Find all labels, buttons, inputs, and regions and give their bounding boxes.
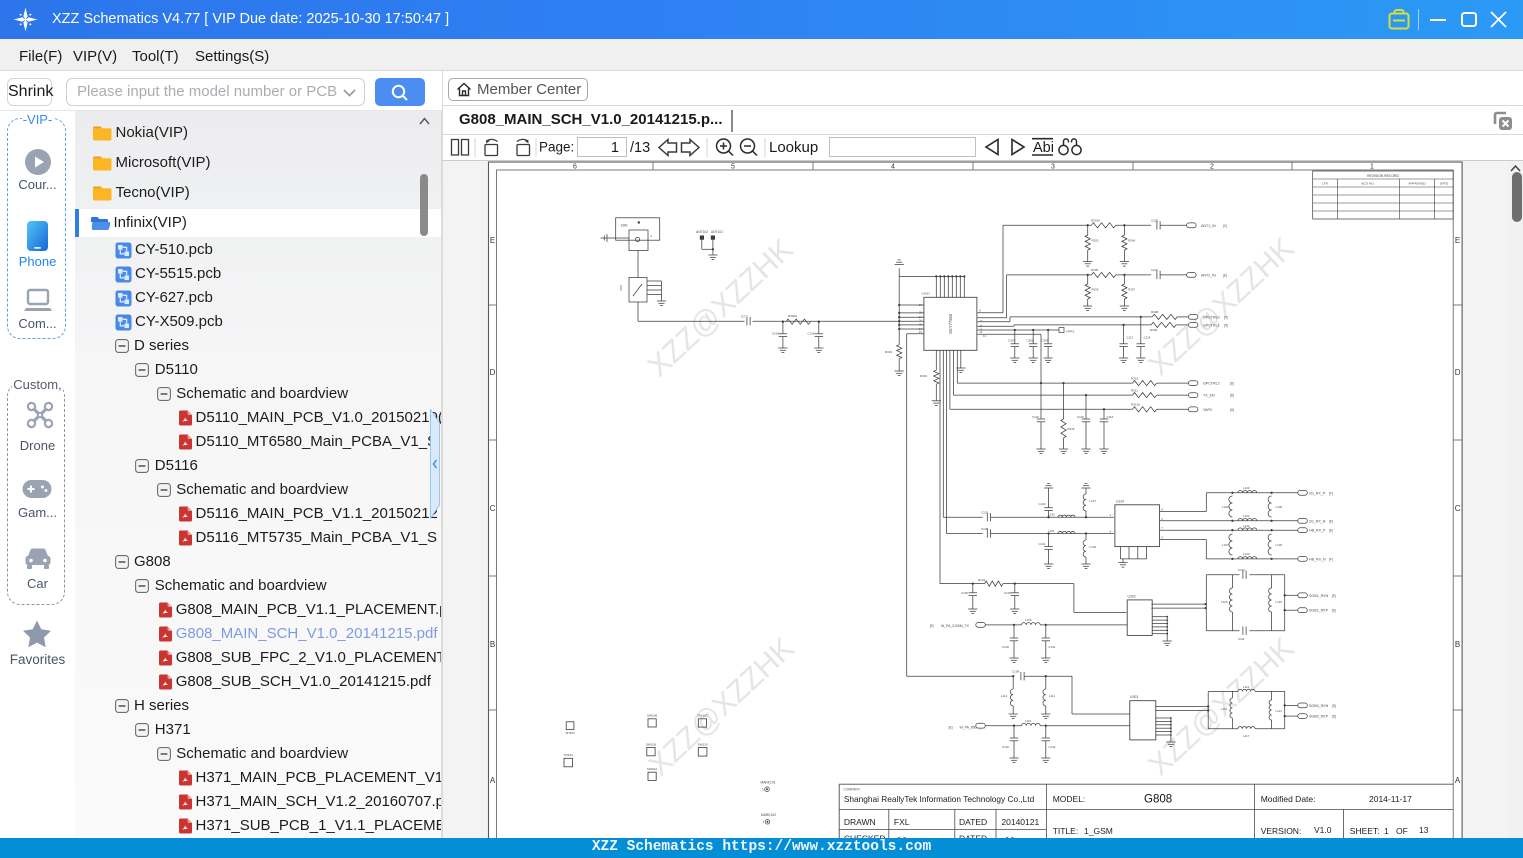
svg-text:1: 1 xyxy=(763,820,765,824)
svg-text:LTR: LTR xyxy=(1322,181,1328,185)
svg-text:R305: R305 xyxy=(1091,268,1099,272)
svg-text:L107: L107 xyxy=(1222,543,1229,547)
svg-text:DATED: DATED xyxy=(959,817,987,827)
svg-text:J300: J300 xyxy=(621,224,628,228)
svg-text:SGB0_RXN: SGB0_RXN xyxy=(1309,704,1329,708)
svg-text:C104: C104 xyxy=(772,332,779,336)
svg-text:[F]: [F] xyxy=(1329,557,1333,561)
svg-text:VERSION:: VERSION: xyxy=(1261,826,1302,836)
svg-text:VAPC: VAPC xyxy=(1203,408,1213,412)
svg-text:GPCTRL2: GPCTRL2 xyxy=(1203,382,1220,386)
svg-text:B: B xyxy=(1455,640,1460,649)
svg-text:R311: R311 xyxy=(1131,388,1138,392)
svg-text:C320: C320 xyxy=(1151,219,1159,223)
svg-text:[F]: [F] xyxy=(1329,491,1333,495)
svg-text:L117: L117 xyxy=(1243,734,1250,738)
svg-text:C141: C141 xyxy=(1039,542,1046,546)
svg-text:SW109: SW109 xyxy=(646,742,656,746)
svg-text:1: 1 xyxy=(1384,826,1389,836)
svg-text:[E]: [E] xyxy=(1332,594,1336,598)
svg-text:R304: R304 xyxy=(1128,239,1135,243)
svg-text:C129: C129 xyxy=(808,332,815,336)
svg-text:C112: C112 xyxy=(1126,336,1133,340)
svg-text:R310: R310 xyxy=(1131,376,1139,380)
svg-text:L112: L112 xyxy=(1001,694,1008,698)
svg-text:[D]: [D] xyxy=(1332,715,1336,719)
svg-text:SH103: SH103 xyxy=(565,731,575,735)
svg-text:J301: J301 xyxy=(619,284,623,291)
svg-text:2G_RX_N: 2G_RX_N xyxy=(1309,519,1326,523)
svg-text:R308: R308 xyxy=(1151,310,1159,314)
svg-text:SW10A: SW10A xyxy=(647,767,658,771)
svg-text:L102: L102 xyxy=(1222,505,1229,509)
svg-text:L110: L110 xyxy=(1221,707,1228,711)
svg-text:L109: L109 xyxy=(1090,545,1097,549)
svg-text:L115: L115 xyxy=(1025,719,1032,723)
svg-text:C115: C115 xyxy=(1077,415,1084,419)
svg-text:HB_RX_P: HB_RX_P xyxy=(1309,529,1326,533)
svg-text:C114: C114 xyxy=(1144,336,1151,340)
svg-text:Lookup: Lookup xyxy=(769,139,818,156)
svg-text:ANT1_IN: ANT1_IN xyxy=(1201,224,1216,228)
svg-text:2G_RX_P: 2G_RX_P xyxy=(1309,491,1326,495)
svg-text:[E]: [E] xyxy=(1223,273,1227,277)
svg-text:L131: L131 xyxy=(1243,514,1250,518)
svg-text:V1.0: V1.0 xyxy=(1314,825,1332,835)
svg-text:SW107: SW107 xyxy=(697,714,707,718)
svg-text:C121: C121 xyxy=(1238,568,1245,572)
svg-text:U302: U302 xyxy=(1128,594,1136,598)
svg-text:SH101: SH101 xyxy=(564,753,574,757)
svg-text:Abi: Abi xyxy=(1033,140,1054,156)
svg-text:L147: L147 xyxy=(1090,499,1097,503)
svg-text:C111: C111 xyxy=(1238,637,1245,641)
svg-text:[H]: [H] xyxy=(1230,408,1234,412)
svg-text:C119: C119 xyxy=(1032,415,1039,419)
svg-text:L126: L126 xyxy=(1276,600,1283,604)
svg-text:Page:: Page: xyxy=(539,140,574,155)
svg-text:C101: C101 xyxy=(981,511,989,515)
svg-text:REVISION RECORD: REVISION RECORD xyxy=(1367,174,1399,178)
svg-text:L101: L101 xyxy=(1048,529,1055,533)
svg-text:SGB1_RXP: SGB1_RXP xyxy=(1309,609,1329,613)
svg-text:[D]: [D] xyxy=(1332,704,1336,708)
svg-text:[E]: [E] xyxy=(930,624,934,628)
svg-text:R144: R144 xyxy=(978,578,986,582)
svg-text:B: B xyxy=(490,640,495,649)
svg-text:W_PA_2100M_TX: W_PA_2100M_TX xyxy=(941,624,970,628)
svg-text:R306: R306 xyxy=(1092,288,1099,292)
svg-text:[D]: [D] xyxy=(1230,394,1234,398)
svg-text:L111: L111 xyxy=(1049,694,1055,698)
svg-text:Shanghai ReallyTek Information: Shanghai ReallyTek Information Technolog… xyxy=(844,794,1035,804)
svg-text:[D]: [D] xyxy=(1224,323,1228,327)
svg-text:SKY77560: SKY77560 xyxy=(948,313,953,334)
svg-text:20140121: 20140121 xyxy=(1001,817,1039,827)
svg-text:A: A xyxy=(490,776,496,785)
svg-text:APPROVED: APPROVED xyxy=(1408,181,1426,185)
svg-text:13: 13 xyxy=(1419,825,1429,835)
svg-text:L130: L130 xyxy=(1048,513,1055,517)
svg-text:ANT101: ANT101 xyxy=(711,230,723,234)
svg-text:A: A xyxy=(1455,776,1461,785)
svg-text:MODEL:: MODEL: xyxy=(1053,794,1086,804)
svg-text:3: 3 xyxy=(1051,163,1055,170)
svg-text:R302A: R302A xyxy=(788,314,797,318)
svg-text:MARK101: MARK101 xyxy=(760,781,775,785)
svg-text:G808: G808 xyxy=(1144,793,1172,805)
svg-text:COMPANY:: COMPANY: xyxy=(844,787,861,791)
svg-text:L108: L108 xyxy=(1276,505,1283,509)
svg-text:C120: C120 xyxy=(1002,745,1009,749)
svg-text:L114: L114 xyxy=(1276,709,1283,713)
svg-text:U303: U303 xyxy=(1130,695,1138,699)
svg-text:HB_RX_N: HB_RX_N xyxy=(1309,557,1326,561)
svg-text:TX_EN: TX_EN xyxy=(1203,394,1215,398)
svg-text:SGB1_RXN: SGB1_RXN xyxy=(1309,594,1329,598)
svg-text:C110: C110 xyxy=(1151,268,1158,272)
svg-text:6: 6 xyxy=(573,163,577,170)
svg-text:U310: U310 xyxy=(1116,499,1124,503)
svg-text:/13: /13 xyxy=(630,140,650,156)
svg-text:C131: C131 xyxy=(1049,645,1056,649)
svg-text:L125: L125 xyxy=(1221,600,1228,604)
svg-text:D: D xyxy=(1455,368,1461,377)
svg-text:1: 1 xyxy=(1370,163,1374,170)
svg-text:[C]: [C] xyxy=(1223,224,1227,228)
svg-text:L129: L129 xyxy=(1025,618,1032,622)
svg-text:TITLE:: TITLE: xyxy=(1053,826,1079,836)
svg-text:2014-11-17: 2014-11-17 xyxy=(1369,794,1412,804)
svg-text:OF: OF xyxy=(1396,826,1408,836)
svg-text:D: D xyxy=(490,368,496,377)
svg-text:[E]: [E] xyxy=(1329,519,1333,523)
svg-text:C: C xyxy=(1455,504,1461,513)
svg-text:C109: C109 xyxy=(1012,670,1020,674)
svg-text:4: 4 xyxy=(891,163,895,170)
svg-text:L116: L116 xyxy=(1243,685,1250,689)
svg-text:C116: C116 xyxy=(1107,415,1114,419)
svg-text:L133: L133 xyxy=(1243,552,1250,556)
svg-text:L106: L106 xyxy=(1276,543,1283,547)
svg-text:ECO NO.: ECO NO. xyxy=(1361,181,1374,185)
svg-text:5: 5 xyxy=(731,163,735,170)
svg-text:DRAWN: DRAWN xyxy=(844,817,876,827)
svg-text:SGB0_RXP: SGB0_RXP xyxy=(1309,715,1329,719)
svg-text:C132: C132 xyxy=(1049,745,1056,749)
svg-text:1: 1 xyxy=(762,788,764,792)
svg-text:FXL: FXL xyxy=(894,817,910,827)
svg-text:R322A: R322A xyxy=(1091,219,1100,223)
svg-text:ANT2_IN: ANT2_IN xyxy=(1201,273,1216,277)
svg-text:[E]: [E] xyxy=(1329,529,1333,533)
svg-text:E: E xyxy=(490,236,495,245)
svg-text:SW110: SW110 xyxy=(698,742,708,746)
svg-text:R315: R315 xyxy=(1068,427,1075,431)
svg-text:SHEET:: SHEET: xyxy=(1350,826,1380,836)
svg-text:LNGD: LNGD xyxy=(922,292,930,296)
svg-text:GPCTRL1: GPCTRL1 xyxy=(1203,323,1220,327)
svg-text:1: 1 xyxy=(611,140,619,156)
svg-text:C309: C309 xyxy=(1042,339,1049,343)
svg-text:GPCTRL0: GPCTRL0 xyxy=(1203,315,1220,319)
svg-text:R301: R301 xyxy=(920,374,928,378)
svg-text:C308: C308 xyxy=(1027,339,1034,343)
svg-text:R303: R303 xyxy=(1092,239,1099,243)
svg-text:E: E xyxy=(1455,236,1460,245)
svg-text:[D]: [D] xyxy=(1224,315,1228,319)
svg-text:R307: R307 xyxy=(1128,288,1135,292)
svg-text:DATE: DATE xyxy=(1440,181,1448,185)
svg-text:C140: C140 xyxy=(1039,502,1046,506)
svg-text:R319: R319 xyxy=(885,350,893,354)
svg-text:[E]: [E] xyxy=(1332,609,1336,613)
svg-text:1_GSM: 1_GSM xyxy=(1084,826,1113,836)
svg-text:[D]: [D] xyxy=(1230,382,1234,386)
svg-text:C108: C108 xyxy=(981,527,989,531)
svg-text:VPPS: VPPS xyxy=(1066,330,1074,334)
svg-text:C105: C105 xyxy=(961,591,968,595)
svg-text:R309: R309 xyxy=(1150,328,1158,332)
svg-text:C: C xyxy=(490,504,496,513)
svg-text:L120: L120 xyxy=(1243,486,1250,490)
svg-text:R312A: R312A xyxy=(1131,403,1140,407)
svg-text:C307: C307 xyxy=(1008,339,1015,343)
svg-text:2: 2 xyxy=(1210,163,1214,170)
svg-text:Modified Date:: Modified Date: xyxy=(1261,794,1316,804)
svg-text:MARK102: MARK102 xyxy=(761,813,776,817)
svg-text:C126: C126 xyxy=(1002,645,1009,649)
svg-text:ANT102: ANT102 xyxy=(696,230,708,234)
svg-text:C102: C102 xyxy=(1004,591,1011,595)
svg-text:[E]: [E] xyxy=(949,726,953,730)
svg-text:L132: L132 xyxy=(1243,524,1250,528)
svg-text:SW106: SW106 xyxy=(647,714,657,718)
